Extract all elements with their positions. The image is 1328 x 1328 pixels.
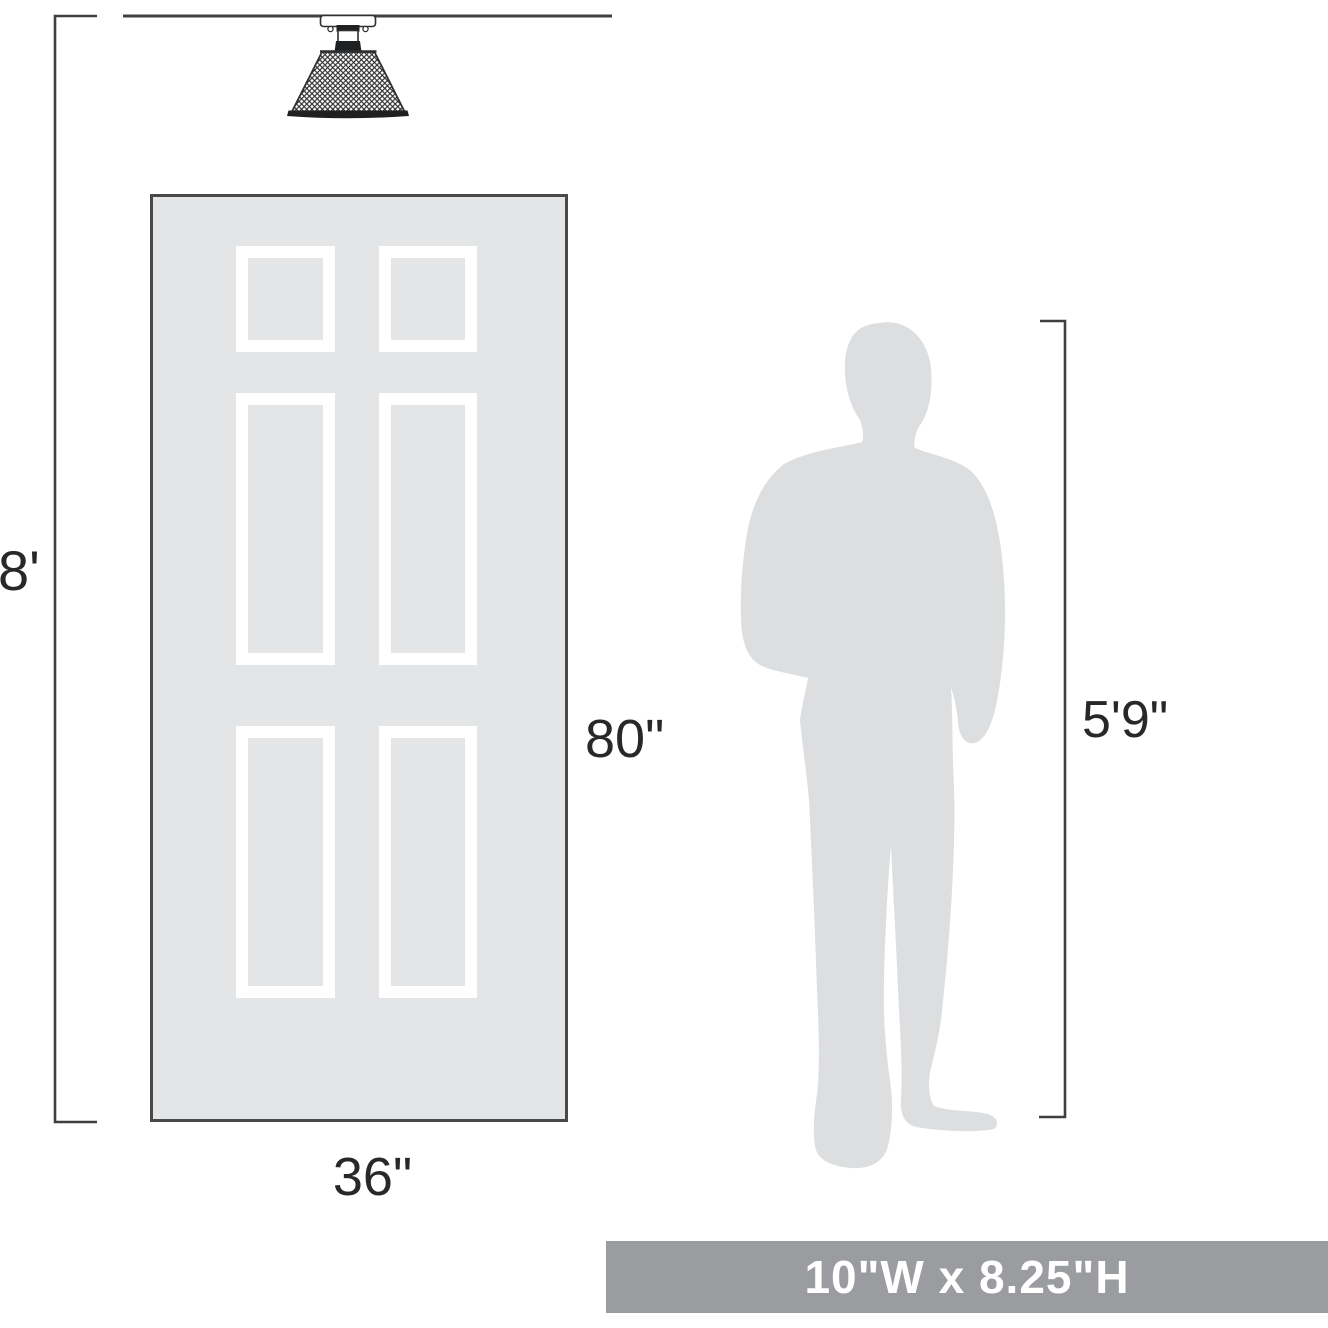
product-dimensions-banner: 10"W x 8.25"H: [606, 1241, 1328, 1313]
person-silhouette: [741, 322, 1005, 1168]
door-width-label: 36": [325, 1150, 420, 1204]
ceiling-height-label: 8': [0, 543, 40, 599]
flush-mount-ceiling-light-icon: [287, 16, 409, 119]
person-height-dimension-line: [1039, 321, 1065, 1117]
ceiling-height-dimension-line: [55, 16, 97, 1122]
door-height-label: 80": [585, 712, 664, 766]
person-height-label: 5'9": [1082, 694, 1168, 746]
diagram-linework: [0, 0, 1328, 1328]
product-scale-diagram: 8' 80" 36" 5'9" 10"W x 8.25"H: [0, 0, 1328, 1328]
product-dimensions-label: 10"W x 8.25"H: [804, 1250, 1129, 1304]
